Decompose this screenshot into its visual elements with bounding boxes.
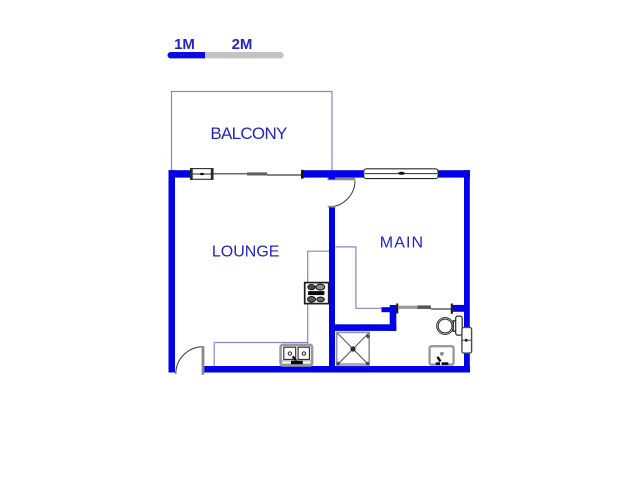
svg-text:MAIN: MAIN: [380, 235, 424, 252]
svg-text:1M: 1M: [174, 36, 195, 53]
svg-text:BALCONY: BALCONY: [210, 124, 287, 143]
svg-text:LOUNGE: LOUNGE: [212, 244, 280, 261]
svg-text:2M: 2M: [232, 36, 253, 53]
